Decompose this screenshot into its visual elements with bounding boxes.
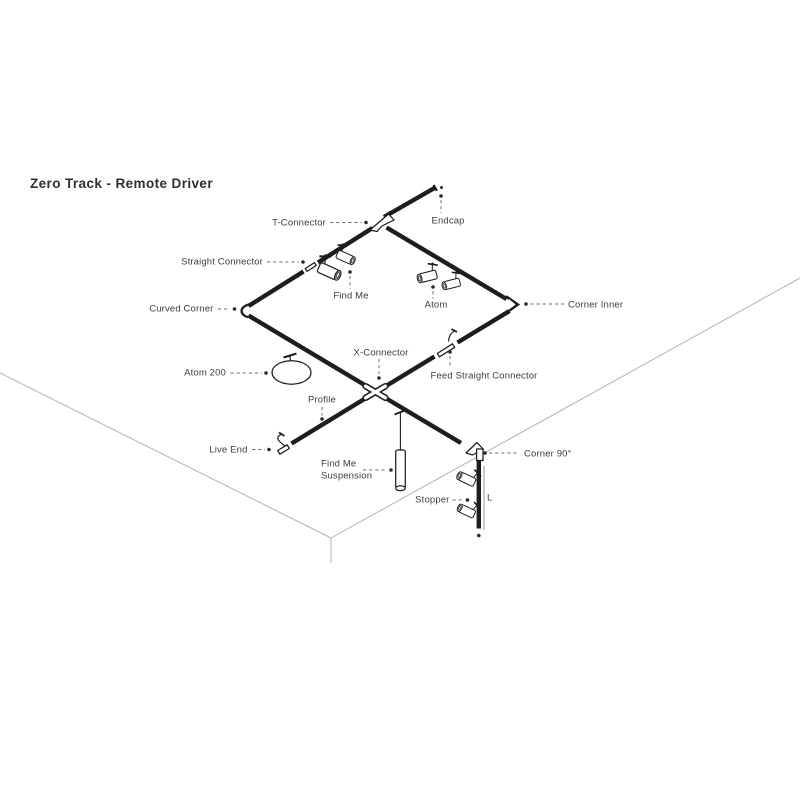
atom-spotlight-2 [440,270,464,290]
label-x-connector: X-Connector [354,347,409,359]
label-length-marker: L [487,492,492,504]
x-connector-glyph [366,386,386,398]
label-find-me-suspension: Find Me Suspension [321,459,372,482]
label-stopper: Stopper [415,494,449,506]
corner-inner-glyph [506,297,518,314]
find-me-suspension-pendant [395,410,407,491]
page-title: Zero Track - Remote Driver [30,176,213,191]
label-find-me-suspension-line2: Suspension [321,470,372,482]
label-curved-corner: Curved Corner [149,303,213,315]
track-bottomright-upper [458,311,510,343]
wall-track-end-dot [477,534,481,538]
live-end-glyph [278,433,290,455]
track-endcap-extension [384,188,435,217]
diagram-canvas: Zero Track - Remote Driver T-Connector E… [0,0,800,800]
label-t-connector: T-Connector [272,217,326,229]
diagram-svg [0,0,800,800]
label-atom: Atom [425,299,448,311]
label-live-end: Live End [209,444,247,456]
label-corner-90: Corner 90° [524,448,572,460]
feed-straight-connector-glyph [437,329,457,357]
track-corner90-extension [386,398,462,443]
label-atom-200: Atom 200 [184,367,226,379]
label-corner-inner: Corner Inner [568,299,623,311]
atom-spotlight-1 [414,261,440,283]
label-profile: Profile [308,394,336,406]
track-bottomright-lower [386,357,435,387]
curved-corner-glyph [242,305,250,318]
straight-connector-glyph [305,263,316,272]
label-feed-straight-connector: Feed Straight Connector [431,370,538,382]
find-me-spotlight-2 [333,242,360,266]
track-topleft-lower [249,272,304,307]
atom-200-pendant [272,354,311,385]
label-endcap: Endcap [432,215,465,227]
label-find-me-suspension-line1: Find Me [321,459,372,471]
label-find-me: Find Me [333,290,368,302]
label-straight-connector: Straight Connector [181,256,263,268]
